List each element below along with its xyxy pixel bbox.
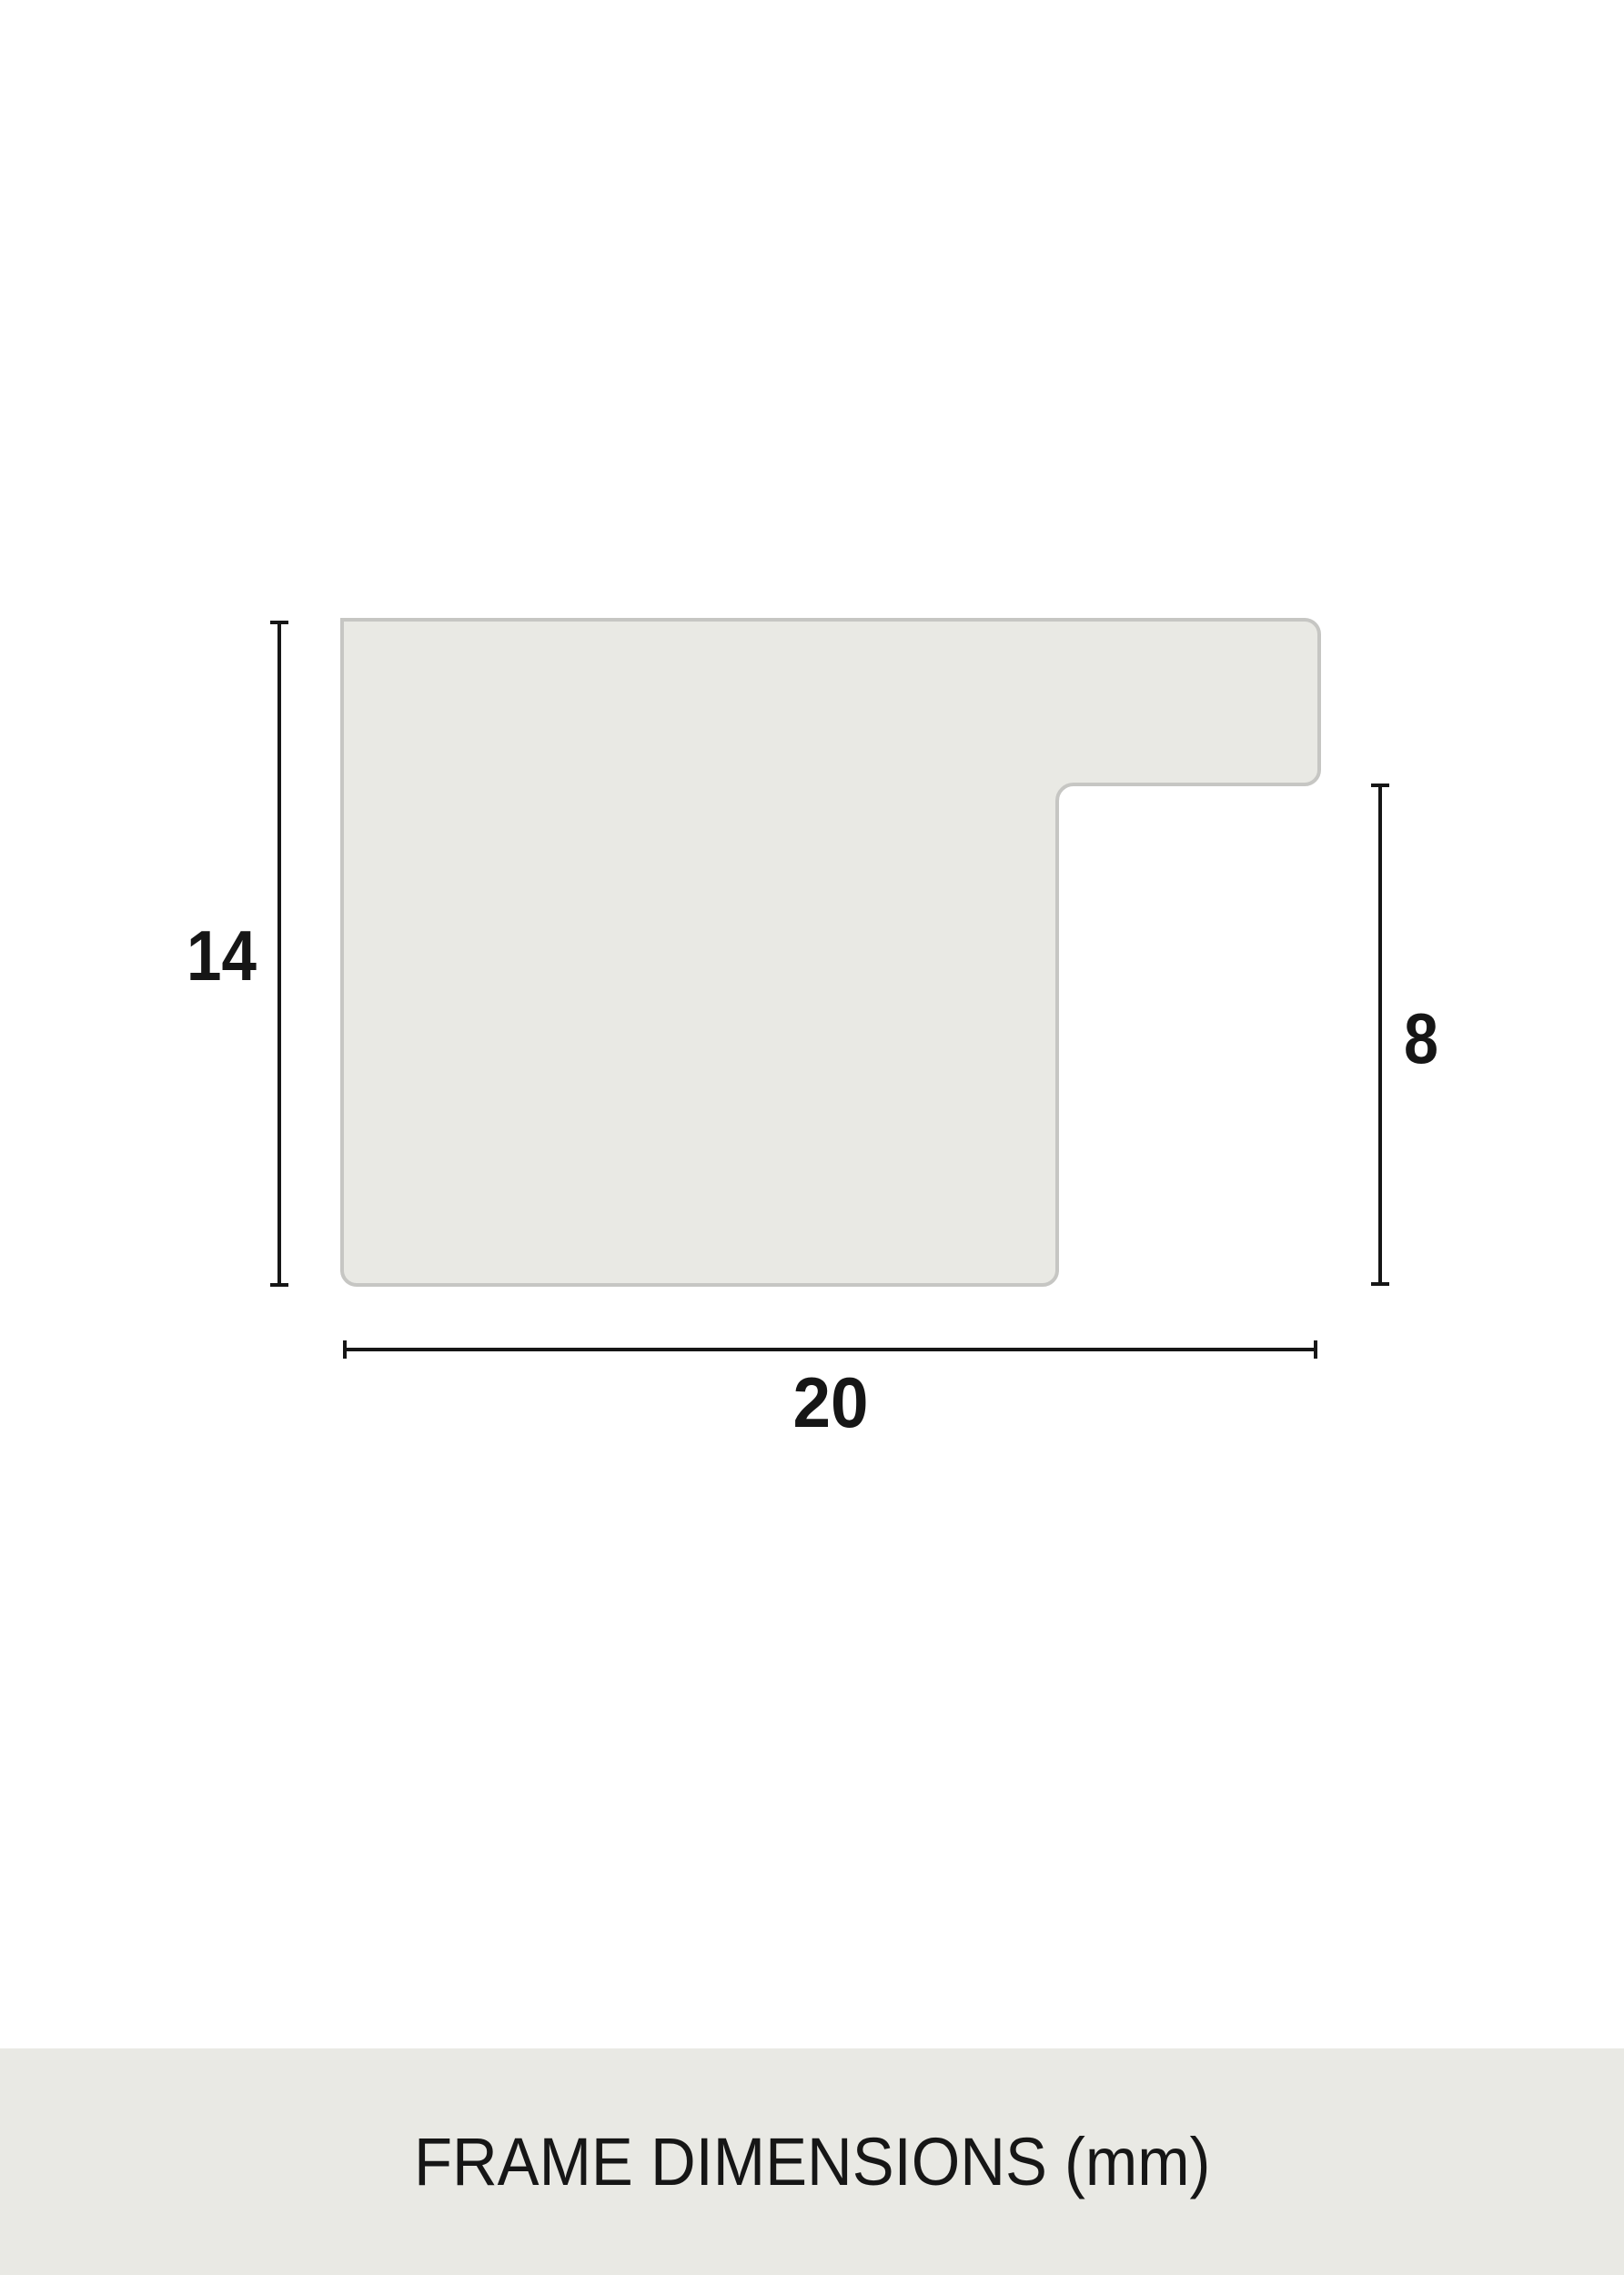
step-height-dimension-line bbox=[1371, 785, 1389, 1284]
profile-drawing: 14 8 20 bbox=[0, 0, 1624, 2275]
width-dimension-line bbox=[345, 1340, 1316, 1359]
footer-title: FRAME DIMENSIONS (mm) bbox=[414, 2123, 1211, 2200]
height-dimension-label: 14 bbox=[187, 915, 257, 996]
height-dimension-line bbox=[270, 622, 288, 1285]
frame-dimensions-diagram: 14 8 20 FRAME DIMENSIONS (mm) bbox=[0, 0, 1624, 2275]
width-dimension-label: 20 bbox=[793, 1362, 869, 1442]
frame-profile-shape bbox=[342, 620, 1319, 1285]
step-height-dimension-label: 8 bbox=[1404, 998, 1438, 1078]
footer-bar: FRAME DIMENSIONS (mm) bbox=[0, 2048, 1624, 2275]
